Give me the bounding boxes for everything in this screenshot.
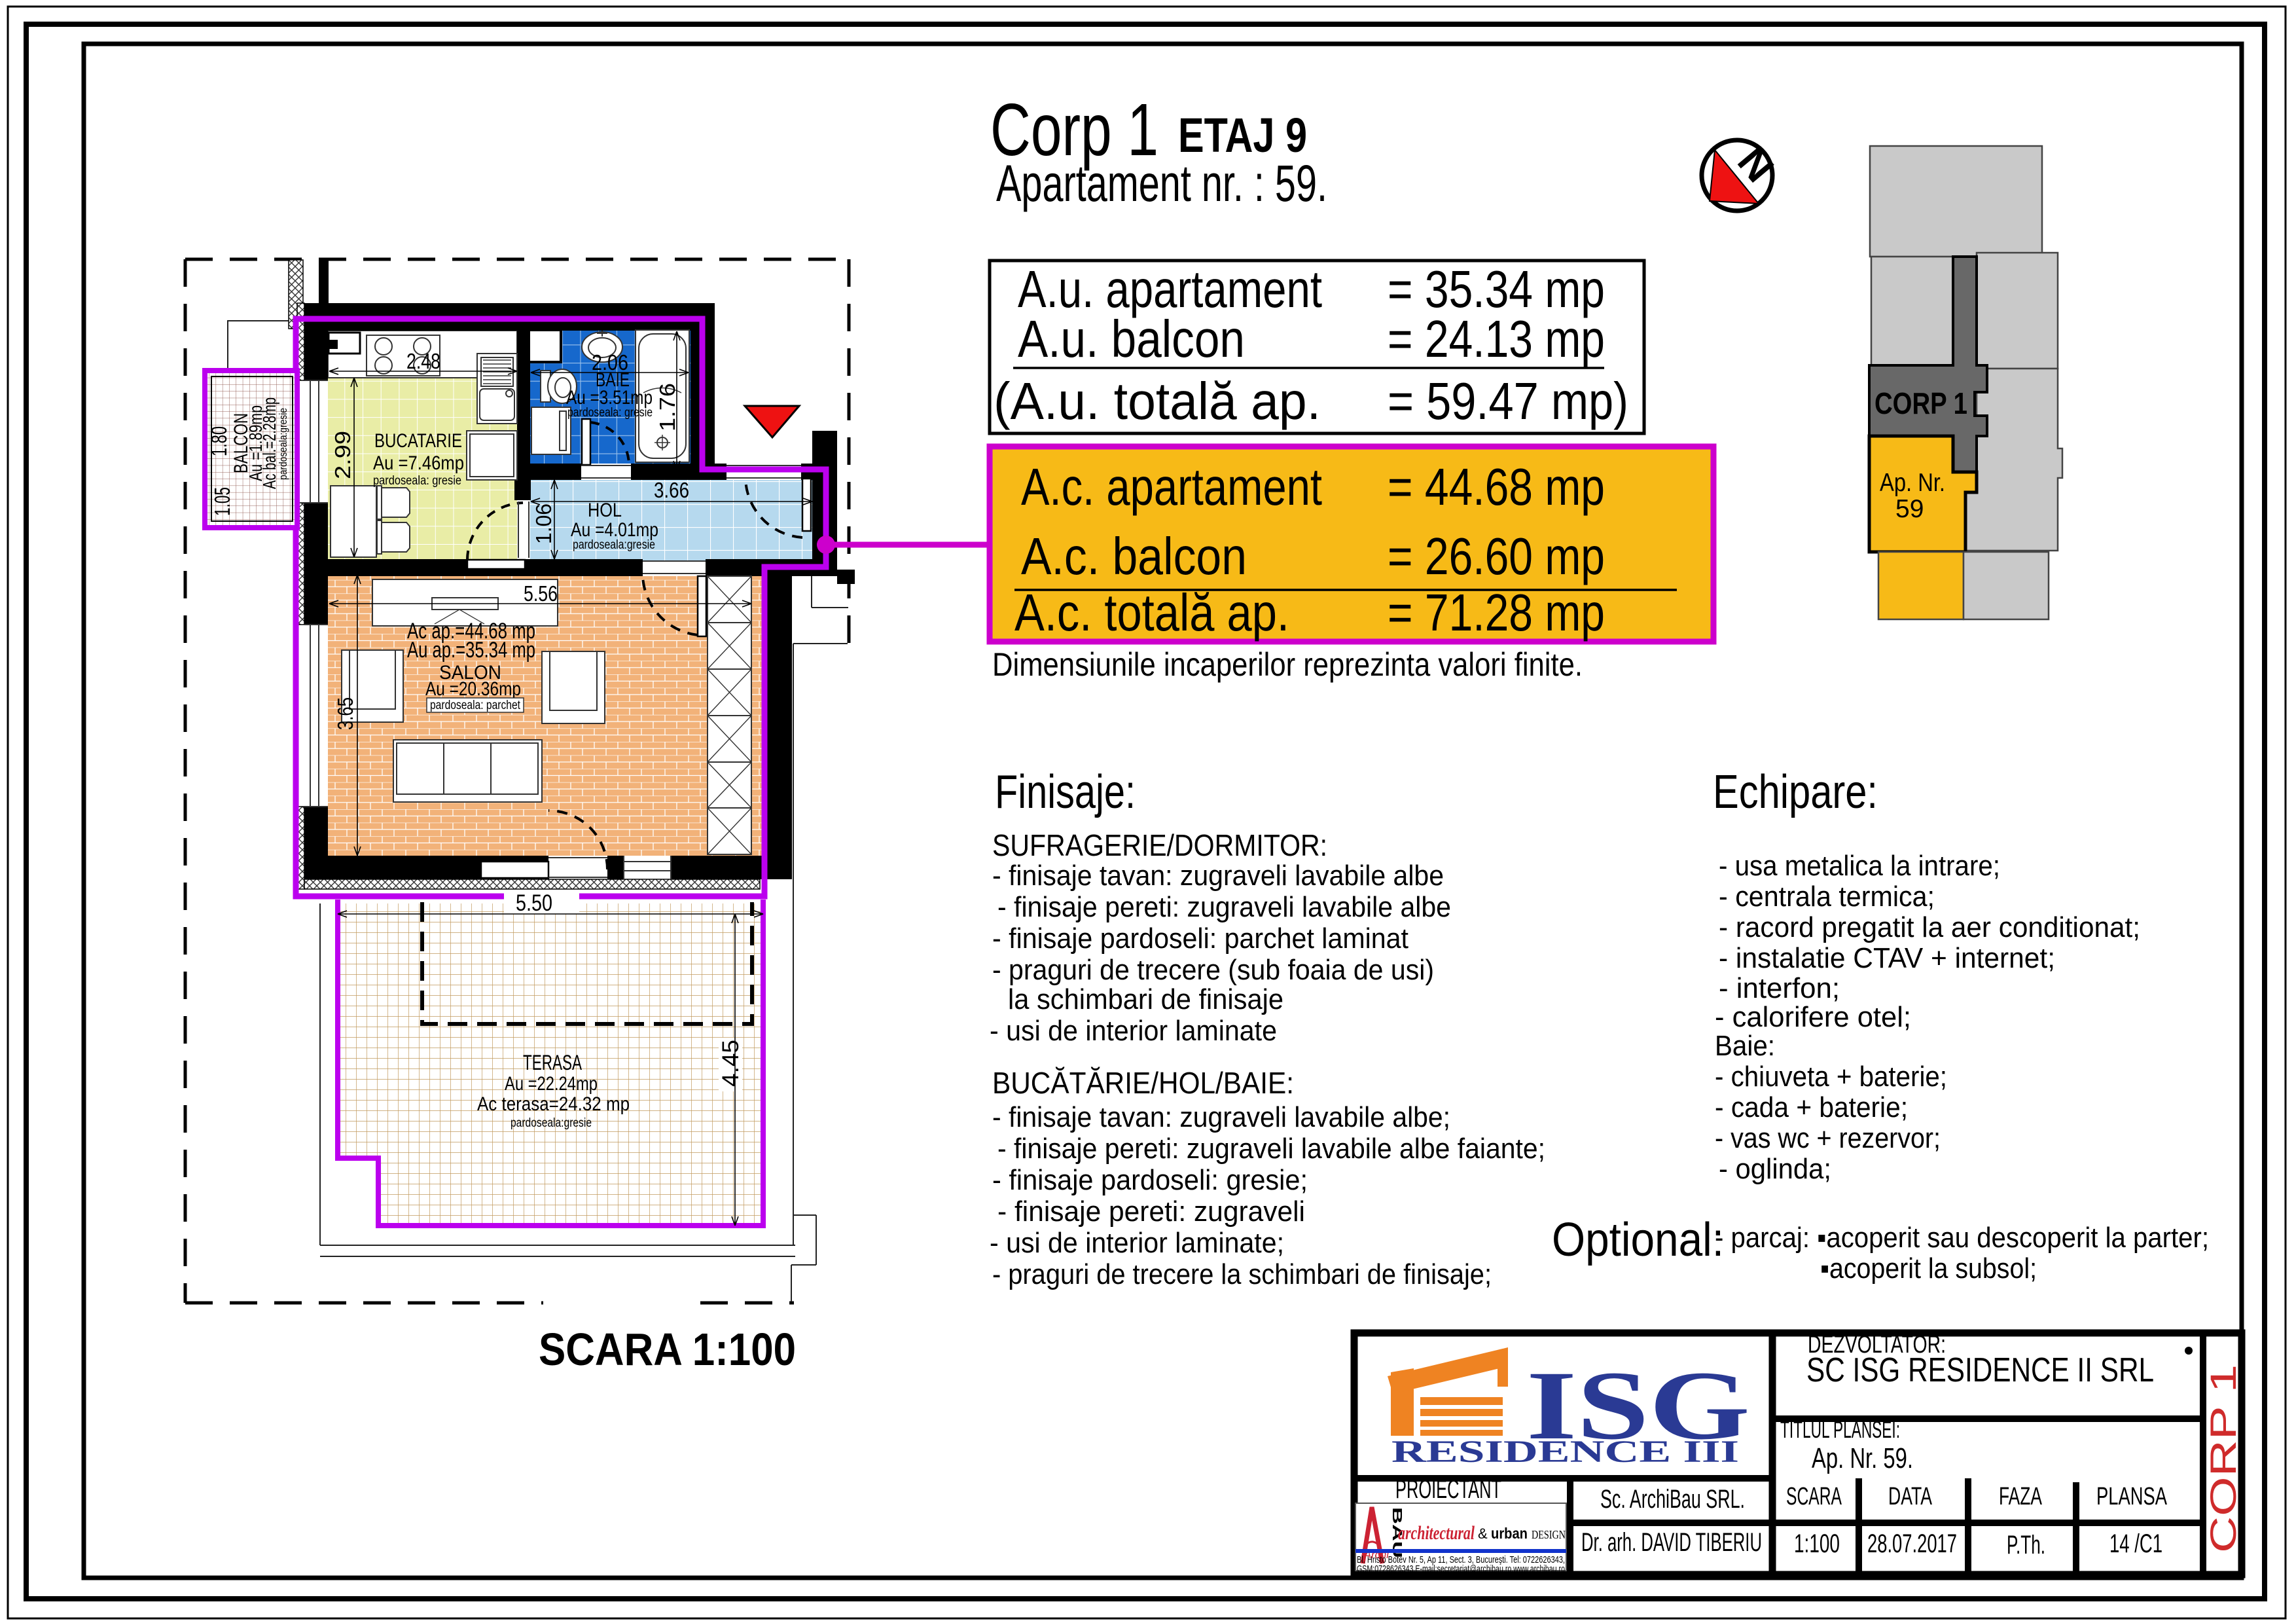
svg-text:1.76: 1.76	[655, 383, 679, 431]
svg-text:Au =20.36mp: Au =20.36mp	[425, 678, 521, 700]
svg-text:= 59.47 mp): = 59.47 mp)	[1388, 372, 1628, 430]
svg-text:= 71.28 mp: = 71.28 mp	[1388, 583, 1605, 642]
svg-text:14 /C1: 14 /C1	[2109, 1529, 2162, 1558]
svg-text:Baie:: Baie:	[1715, 1030, 1775, 1062]
svg-text:- centrala termica;: - centrala termica;	[1719, 881, 1935, 913]
svg-text:Au ap.=35.34 mp: Au ap.=35.34 mp	[407, 638, 535, 663]
svg-text:- finisaje pereti: zugraveli: - finisaje pereti: zugraveli	[997, 1195, 1305, 1228]
svg-text:- calorifere otel;: - calorifere otel;	[1715, 1001, 1911, 1033]
svg-text:A.u. balcon: A.u. balcon	[1018, 310, 1245, 368]
svg-text:= 44.68 mp: = 44.68 mp	[1388, 458, 1605, 516]
svg-text:FAZA: FAZA	[1999, 1483, 2042, 1510]
svg-text:pardoseala:gresie: pardoseala:gresie	[511, 1116, 592, 1130]
svg-text:pardoseala:gresie: pardoseala:gresie	[573, 538, 655, 552]
svg-text:59: 59	[1895, 495, 1924, 523]
svg-text:- chiuveta + baterie;: - chiuveta + baterie;	[1715, 1061, 1947, 1093]
svg-text:- finisaje tavan: zugraveli la: - finisaje tavan: zugraveli lavabile alb…	[992, 1101, 1450, 1133]
svg-text:1.80: 1.80	[207, 426, 231, 456]
svg-text:- oglinda;: - oglinda;	[1719, 1153, 1831, 1185]
svg-text:Au =7.46mp: Au =7.46mp	[373, 452, 464, 474]
svg-text:- finisaje pardoseli: gresie;: - finisaje pardoseli: gresie;	[992, 1164, 1308, 1196]
svg-text:BUCATARIE: BUCATARIE	[374, 430, 462, 452]
svg-text:- praguri de trecere (sub foai: - praguri de trecere (sub foaia de usi)	[992, 954, 1434, 986]
svg-text:PLANSA: PLANSA	[2096, 1483, 2167, 1510]
svg-text:- finisaje pardoseli: parchet: - finisaje pardoseli: parchet laminat	[992, 922, 1408, 955]
svg-text:pardoseala: parchet: pardoseala: parchet	[430, 699, 521, 712]
svg-text:(A.u. totală ap.: (A.u. totală ap.	[994, 372, 1321, 430]
svg-text:SCARA: SCARA	[1786, 1483, 1842, 1510]
svg-text:HOL: HOL	[588, 500, 622, 521]
svg-text:- instalatie CTAV + internet;: - instalatie CTAV + internet;	[1719, 942, 2055, 974]
svg-text:5.56: 5.56	[524, 581, 558, 606]
svg-text:- vas wc + rezervor;: - vas wc + rezervor;	[1715, 1122, 1941, 1154]
svg-text:- parcaj: ▪acoperit sau descop: - parcaj: ▪acoperit sau descoperit la pa…	[1715, 1222, 2209, 1254]
svg-text:- finisaje pereti: zugraveli l: - finisaje pereti: zugraveli lavabile al…	[997, 891, 1451, 923]
svg-text:3.65: 3.65	[333, 697, 357, 730]
svg-text:- usa metalica la intrare;: - usa metalica la intrare;	[1719, 850, 2000, 882]
svg-text:la schimbari de finisaje: la schimbari de finisaje	[1008, 983, 1283, 1015]
svg-text:Finisaje:: Finisaje:	[995, 766, 1136, 818]
svg-text:Ap. Nr.: Ap. Nr.	[1880, 469, 1945, 497]
svg-text:A.c. totală ap.: A.c. totală ap.	[1014, 583, 1289, 642]
svg-text:Dr. arh. DAVID TIBERIU: Dr. arh. DAVID TIBERIU	[1581, 1528, 1762, 1557]
svg-text:28.07.2017: 28.07.2017	[1867, 1529, 1957, 1558]
svg-text:Ap. Nr. 59.: Ap. Nr. 59.	[1812, 1442, 1913, 1474]
svg-text:Au =22.24mp: Au =22.24mp	[505, 1073, 598, 1095]
svg-text:- praguri de trecere la schimb: - praguri de trecere la schimbari de fin…	[992, 1258, 1492, 1290]
svg-text:P.Th.: P.Th.	[2007, 1531, 2045, 1559]
svg-text:pardoseala: gresie: pardoseala: gresie	[373, 474, 461, 488]
svg-text:2.48: 2.48	[406, 349, 440, 373]
svg-text:urban: urban	[1491, 1525, 1528, 1542]
svg-text:4.45: 4.45	[718, 1040, 744, 1087]
svg-text:Sc. ArchiBau SRL.: Sc. ArchiBau SRL.	[1600, 1485, 1745, 1514]
svg-text:Optional:: Optional:	[1552, 1214, 1724, 1266]
svg-text:RESIDENCE III: RESIDENCE III	[1391, 1434, 1739, 1469]
svg-text:5.50: 5.50	[516, 890, 552, 916]
svg-text:SCARA 1:100: SCARA 1:100	[539, 1324, 796, 1375]
svg-text:pardoseala: gresie: pardoseala: gresie	[567, 406, 653, 420]
svg-text:DESIGN: DESIGN	[1532, 1528, 1566, 1541]
svg-text:- usi de interior laminate;: - usi de interior laminate;	[990, 1227, 1284, 1259]
svg-text:BUCĂTĂRIE/HOL/BAIE:: BUCĂTĂRIE/HOL/BAIE:	[992, 1066, 1294, 1100]
svg-text:CORP 1: CORP 1	[2202, 1364, 2244, 1553]
svg-text:3.66: 3.66	[654, 478, 689, 502]
svg-text:TITLUL PLANSEI:: TITLUL PLANSEI:	[1780, 1416, 1900, 1443]
svg-text:architectural: architectural	[1398, 1522, 1475, 1544]
svg-text:- usi de interior laminate: - usi de interior laminate	[990, 1015, 1277, 1047]
svg-text:pardoseala:gresie: pardoseala:gresie	[277, 408, 289, 480]
svg-text:Ac terasa=24.32 mp: Ac terasa=24.32 mp	[477, 1093, 630, 1115]
svg-text:TERASA: TERASA	[523, 1051, 582, 1074]
svg-text:A.c. balcon: A.c. balcon	[1021, 527, 1247, 585]
svg-text:PROIECTANT: PROIECTANT	[1395, 1475, 1501, 1504]
svg-text:2.99: 2.99	[331, 431, 355, 479]
svg-text:= 24.13 mp: = 24.13 mp	[1388, 310, 1605, 368]
svg-text:1.05: 1.05	[210, 487, 234, 516]
svg-text:- cada + baterie;: - cada + baterie;	[1715, 1091, 1908, 1123]
svg-text:&: &	[1478, 1525, 1488, 1542]
svg-text:Echipare:: Echipare:	[1713, 766, 1878, 818]
svg-text:- interfon;: - interfon;	[1719, 972, 1840, 1004]
svg-text:SUFRAGERIE/DORMITOR:: SUFRAGERIE/DORMITOR:	[992, 828, 1327, 862]
svg-text:A.c. apartament: A.c. apartament	[1021, 458, 1322, 516]
svg-text:- finisaje tavan: zugraveli la: - finisaje tavan: zugraveli lavabile alb…	[992, 860, 1444, 892]
svg-text:- racord pregatit la aer cond: - racord pregatit la aer conditionat;	[1719, 911, 2140, 943]
svg-text:1:100: 1:100	[1794, 1529, 1840, 1558]
svg-text:Apartament nr. : 59.: Apartament nr. : 59.	[996, 154, 1327, 212]
svg-text:DATA: DATA	[1888, 1483, 1932, 1510]
svg-text:1.06: 1.06	[531, 503, 556, 544]
svg-text:▪acoperit la subsol;: ▪acoperit la subsol;	[1820, 1252, 2037, 1285]
svg-text:= 26.60 mp: = 26.60 mp	[1388, 527, 1605, 585]
svg-text:Dimensiunile incaperilor repre: Dimensiunile incaperilor reprezinta valo…	[992, 646, 1583, 683]
svg-text:CORP 1: CORP 1	[1874, 386, 1967, 420]
svg-text:SC ISG RESIDENCE II SRL: SC ISG RESIDENCE II SRL	[1806, 1351, 2154, 1389]
svg-text:- finisaje pereti: zugraveli l: - finisaje pereti: zugraveli lavabile al…	[997, 1133, 1545, 1165]
svg-text:GSM:0728626343,E-mail:secretar: GSM:0728626343,E-mail:secretariat@archib…	[1357, 1563, 1565, 1575]
